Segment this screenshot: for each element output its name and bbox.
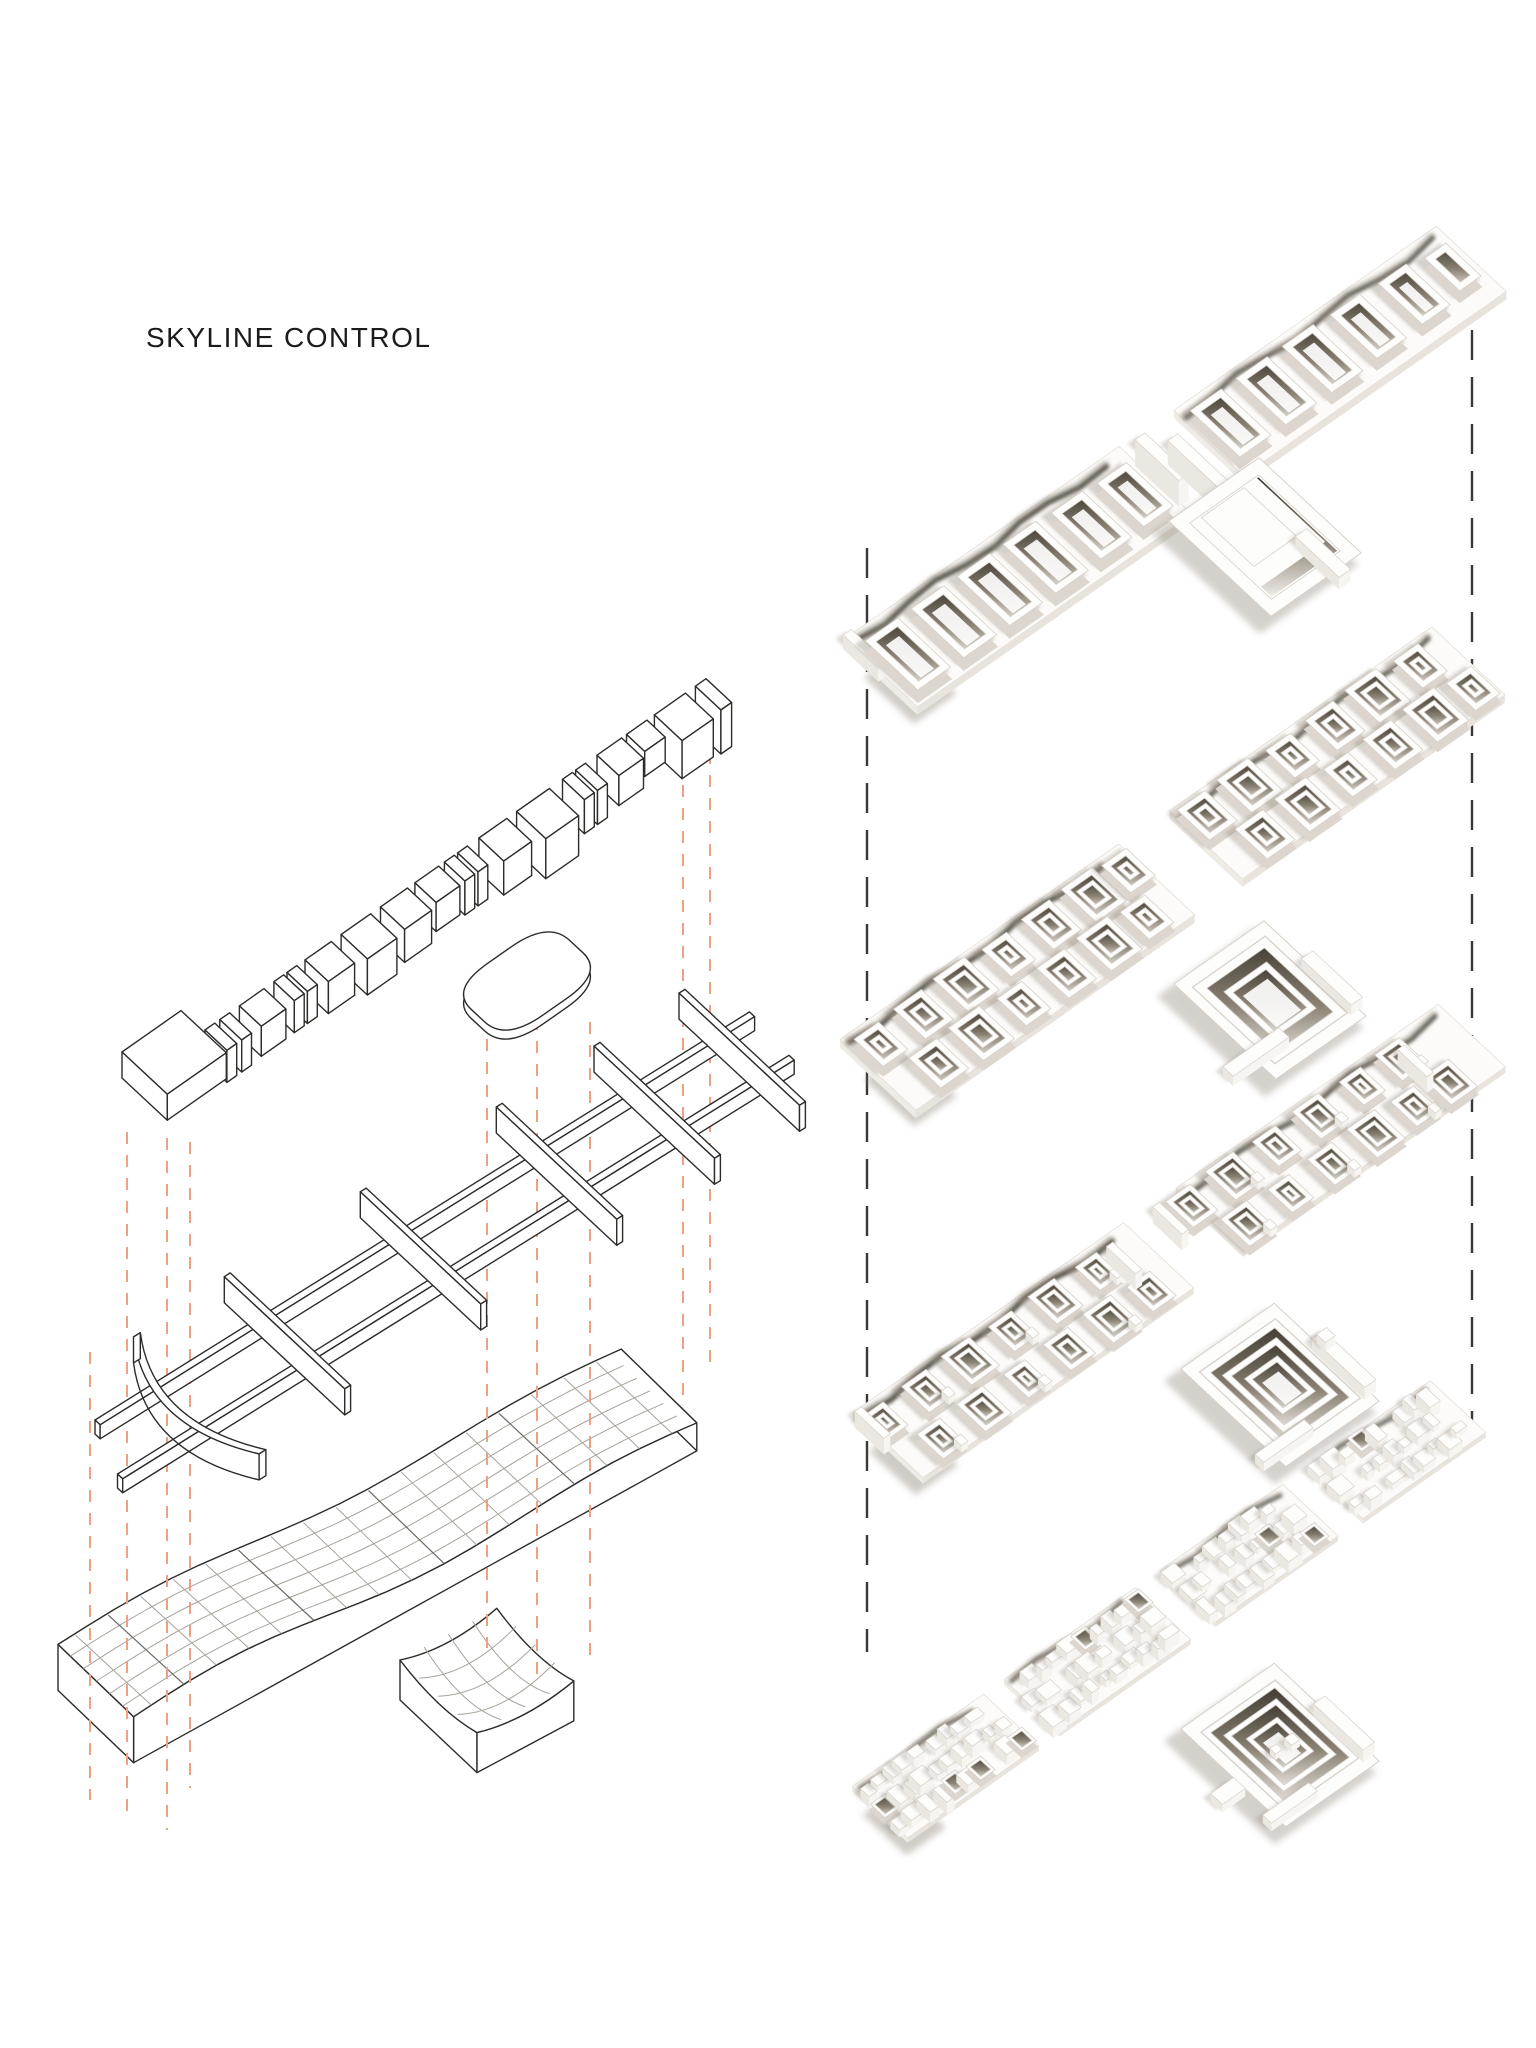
dished-terrain-block: [400, 1608, 574, 1772]
exploded-axonometric-diagram: [58, 679, 805, 1830]
massing-blocks-layer: [122, 679, 732, 1120]
skyline-control-artwork: [0, 0, 1536, 2048]
poster-canvas: SKYLINE CONTROL: [0, 0, 1536, 2048]
structural-grid-layer: [95, 932, 805, 1493]
courtyard-square-4: [1164, 1663, 1380, 1844]
courtyard-square-2: [1157, 921, 1366, 1097]
massing-iteration-panel: [836, 226, 1507, 1855]
terrain-layer: [58, 1349, 697, 1773]
